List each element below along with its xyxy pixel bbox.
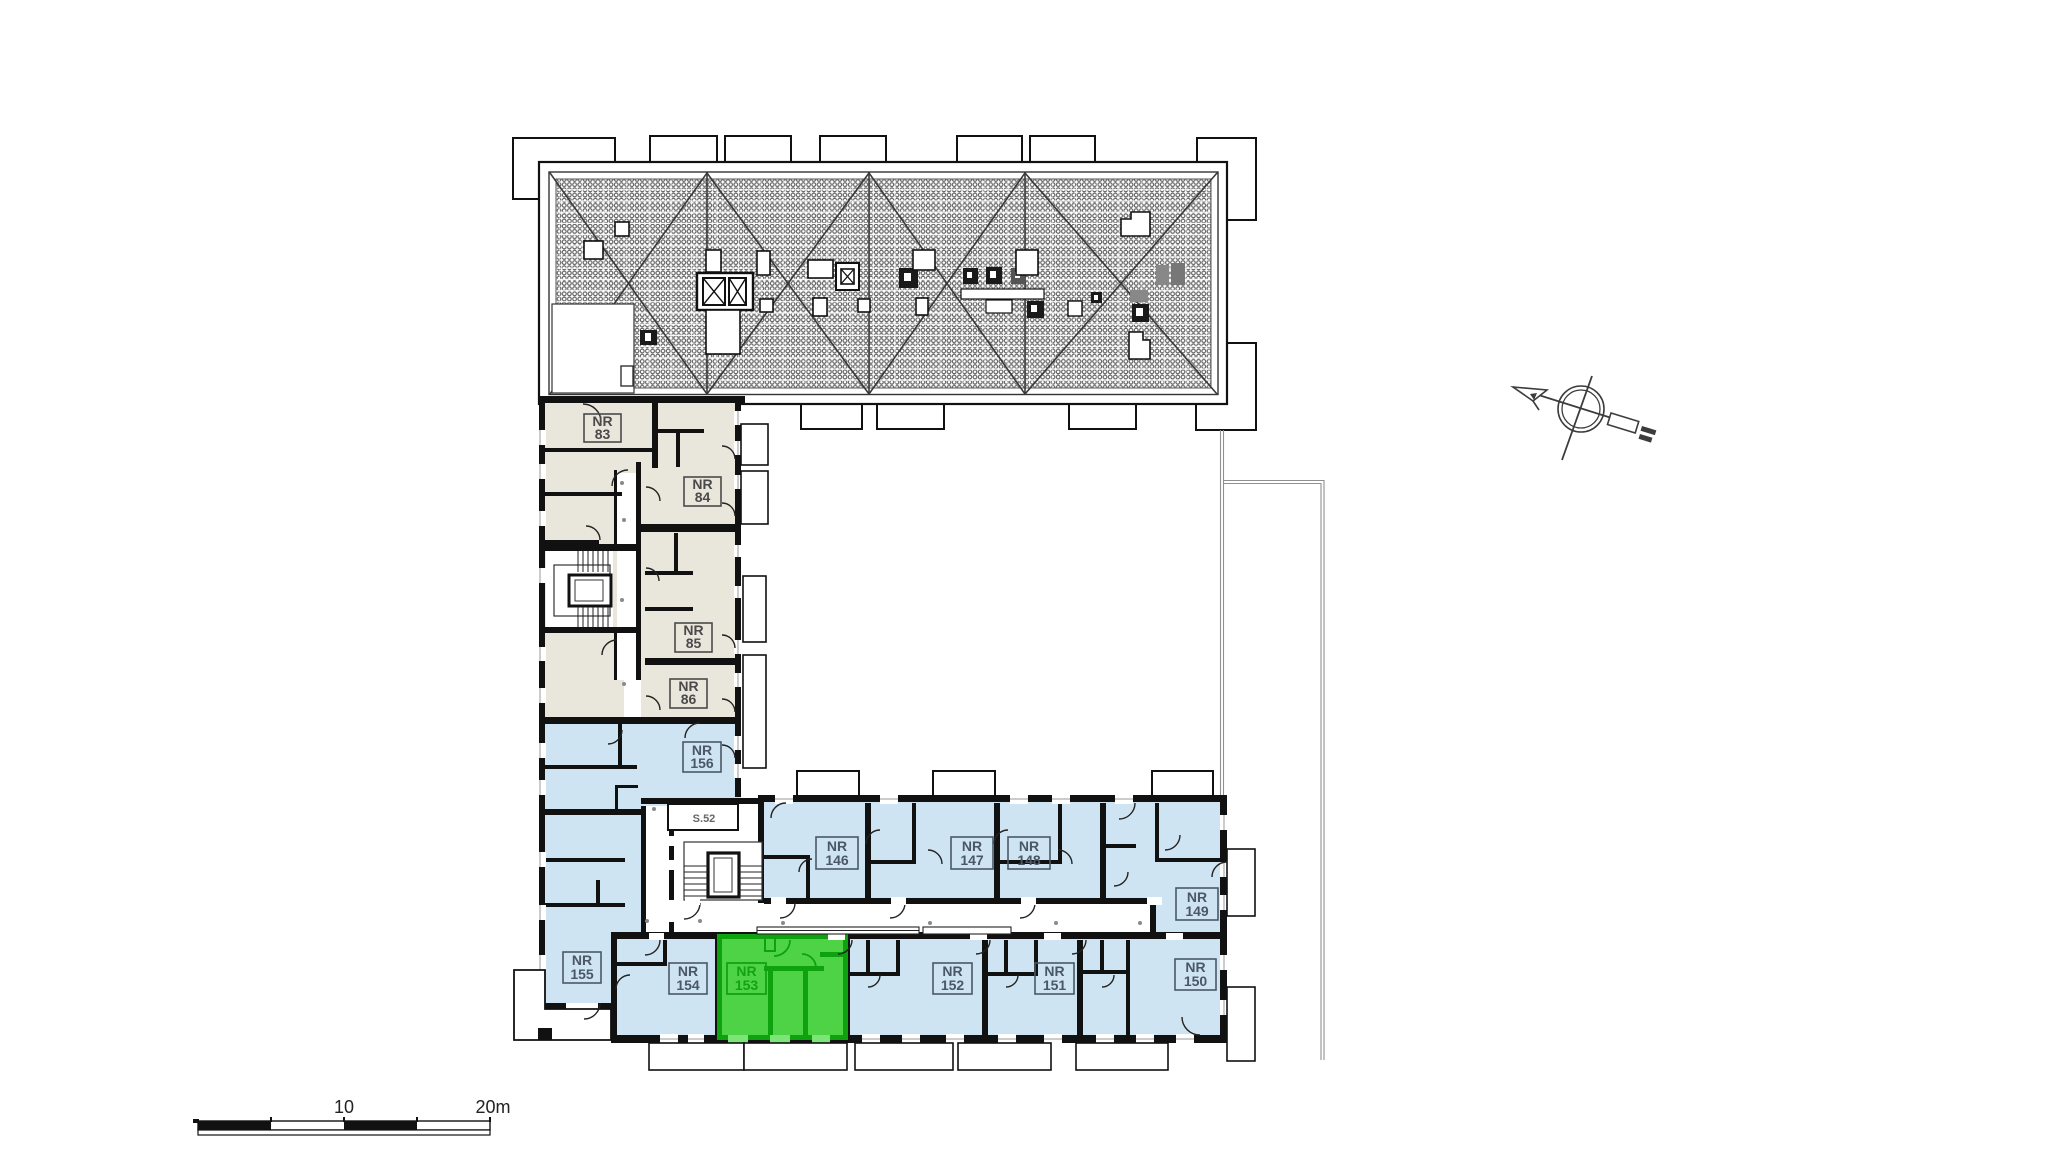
svg-text:20m: 20m [475,1097,510,1117]
svg-text:146: 146 [825,852,849,868]
svg-text:148: 148 [1017,852,1041,868]
svg-text:151: 151 [1043,977,1067,993]
svg-text:156: 156 [690,755,714,771]
svg-text:85: 85 [686,635,702,651]
svg-text:86: 86 [681,691,697,707]
svg-text:147: 147 [960,852,984,868]
svg-text:150: 150 [1184,973,1208,989]
svg-text:10: 10 [334,1097,354,1117]
svg-text:84: 84 [695,489,711,505]
svg-text:154: 154 [676,977,700,993]
svg-text:S.52: S.52 [693,813,716,825]
svg-text:83: 83 [595,426,611,442]
svg-text:149: 149 [1185,903,1209,919]
svg-text:155: 155 [570,966,594,982]
svg-text:152: 152 [941,977,965,993]
svg-text:153: 153 [735,977,759,993]
